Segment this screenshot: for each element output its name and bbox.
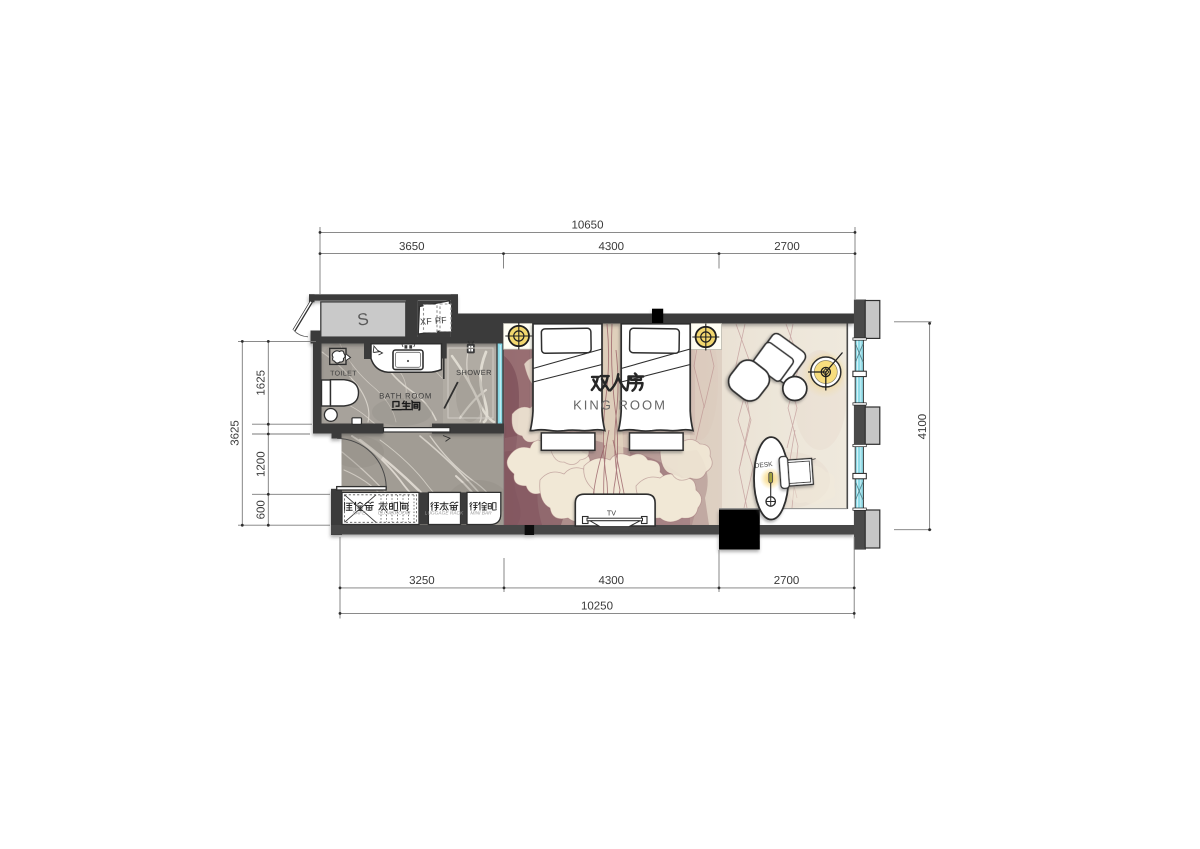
svg-text:2700: 2700: [774, 575, 800, 587]
svg-text:1625: 1625: [256, 370, 268, 396]
svg-text:XF PF: XF PF: [420, 315, 448, 327]
svg-text:600: 600: [256, 500, 268, 519]
svg-text:TOILET: TOILET: [330, 371, 357, 378]
svg-text:4300: 4300: [599, 241, 625, 253]
svg-text:SHOWER: SHOWER: [456, 368, 492, 377]
svg-text:2700: 2700: [774, 241, 800, 253]
svg-text:SAFE: SAFE: [352, 511, 366, 517]
svg-text:KING ROOM: KING ROOM: [573, 398, 667, 413]
svg-text:4300: 4300: [599, 575, 625, 587]
svg-text:TV: TV: [607, 509, 616, 518]
svg-text:CLOAKROOM: CLOAKROOM: [378, 511, 411, 517]
svg-text:3250: 3250: [409, 575, 435, 587]
svg-text:3650: 3650: [399, 241, 425, 253]
svg-text:MINI BAR: MINI BAR: [470, 511, 492, 517]
svg-text:4100: 4100: [917, 414, 929, 440]
svg-text:10250: 10250: [581, 601, 613, 613]
svg-text:3625: 3625: [230, 420, 242, 446]
svg-text:BATH ROOM: BATH ROOM: [379, 392, 432, 401]
svg-text:10650: 10650: [572, 220, 604, 232]
svg-text:1200: 1200: [256, 451, 268, 477]
svg-text:LUGGAGE RACK: LUGGAGE RACK: [425, 511, 464, 517]
